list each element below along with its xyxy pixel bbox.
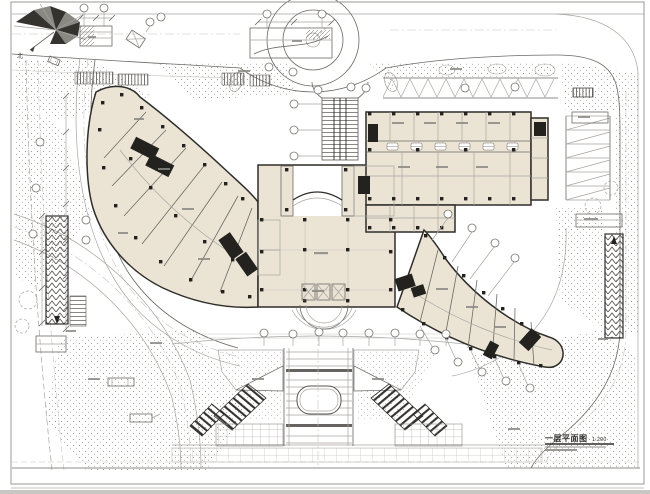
entrance-court — [293, 166, 342, 216]
drawing-scale: 1:200 — [592, 437, 606, 443]
north-label: 北 — [17, 52, 23, 60]
left-wing — [87, 86, 258, 307]
floor-plan-canvas: 北 一层平面图 1:200 — [0, 0, 650, 494]
desk-strip — [0, 490, 650, 494]
fountain-oval — [297, 386, 341, 414]
floor-plan-drawing: 北 一层平面图 1:200 — [0, 0, 650, 494]
drawing-title: 一层平面图 — [545, 434, 588, 443]
right-wing — [366, 112, 531, 205]
plaza-paving — [172, 424, 542, 462]
grand-stair-north — [312, 82, 368, 160]
tilted-detail-box — [126, 30, 145, 48]
parking-right-side — [566, 116, 610, 200]
